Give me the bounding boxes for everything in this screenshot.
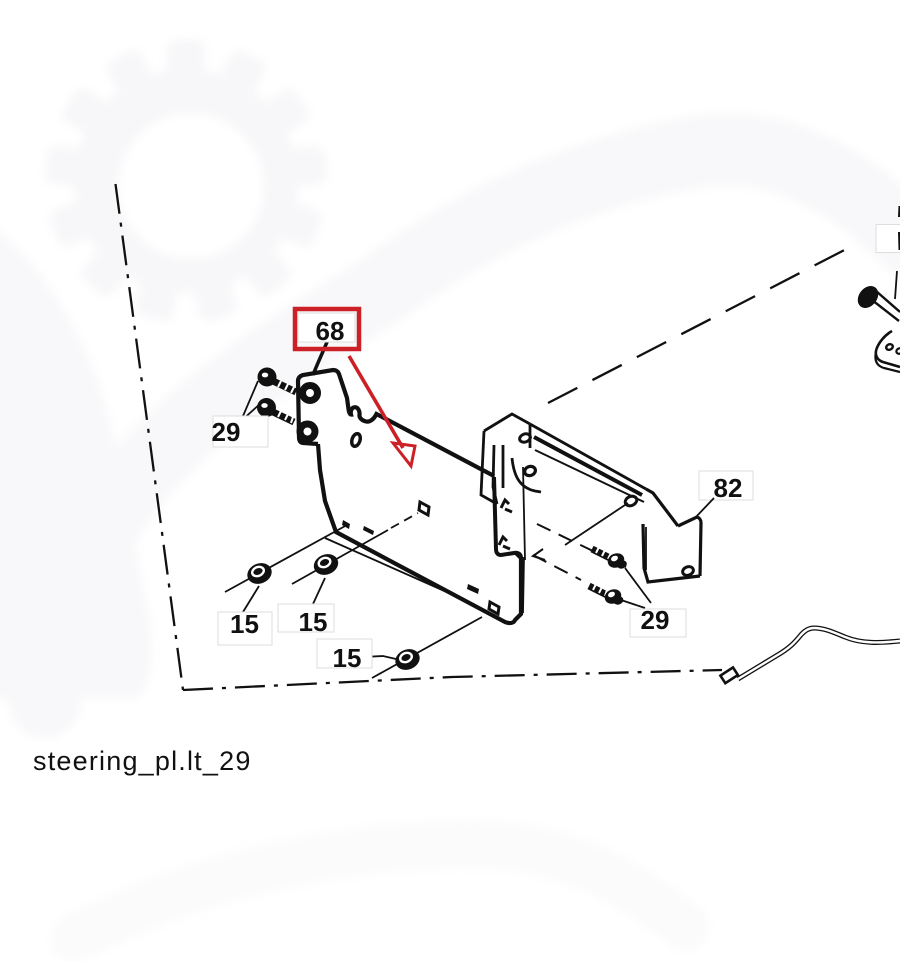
svg-text:steering_pl.lt_29: steering_pl.lt_29 <box>33 746 252 776</box>
svg-text:68: 68 <box>316 316 345 346</box>
svg-text:82: 82 <box>714 473 743 503</box>
svg-text:15: 15 <box>299 607 328 637</box>
svg-text:29: 29 <box>641 605 670 635</box>
svg-text:29: 29 <box>212 417 241 447</box>
svg-text:15: 15 <box>333 643 362 673</box>
svg-text:15: 15 <box>230 609 259 639</box>
